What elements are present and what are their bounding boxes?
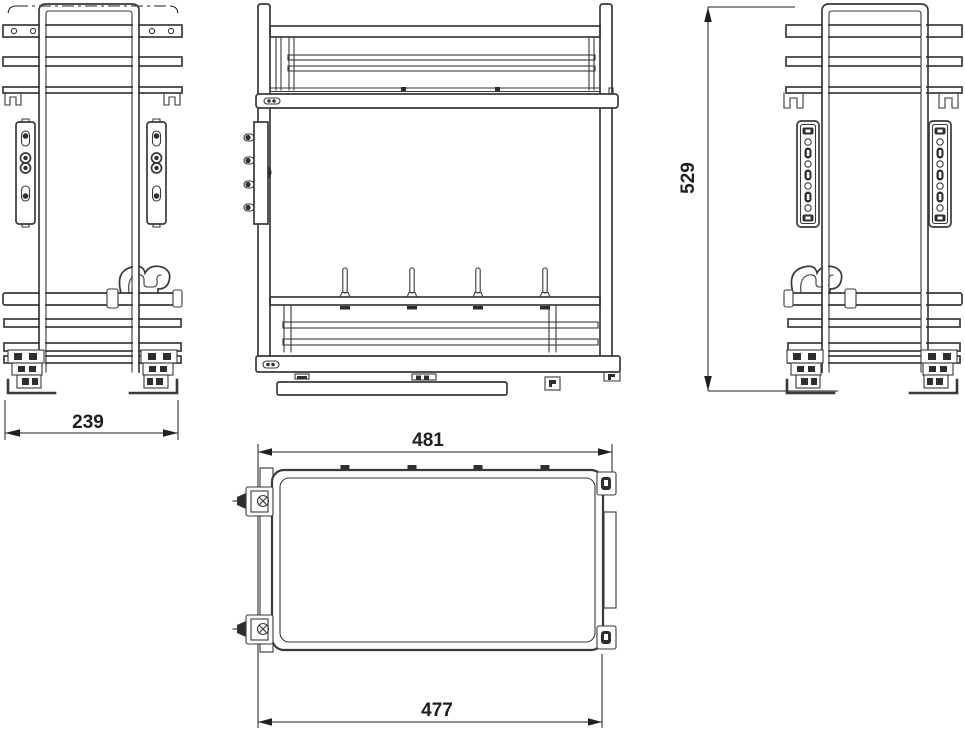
corner-bracket-top-right: [597, 472, 616, 495]
slotted-rail-right: [929, 121, 951, 227]
slotted-rail-left: [797, 121, 819, 227]
handle-frame: [822, 4, 928, 372]
dimension-value-top-rail-width: 481: [412, 430, 444, 451]
technical-drawing-page: 239 529 481 477: [0, 0, 965, 730]
dimension-value-side-width: 239: [72, 412, 104, 433]
handle-frame: [39, 4, 139, 372]
corner-hook-left: [5, 93, 21, 105]
slide-rail-top: [604, 512, 616, 608]
dimension-value-overall-height: 529: [678, 162, 699, 194]
corner-hook-right: [164, 93, 180, 105]
pullout-basket-technical-drawing: 239 529 481 477: [0, 0, 965, 730]
dimension-top-tray-width: 477: [258, 654, 602, 728]
clamp-bracket-bottom-left: [233, 615, 273, 644]
view-front: [244, 4, 620, 395]
slide-rail: [277, 382, 507, 395]
corner-bracket-bottom-right: [597, 626, 616, 649]
view-top: [233, 465, 616, 652]
dimension-side-width: 239: [5, 400, 178, 440]
view-side-left: [3, 4, 182, 393]
tray-outer: [272, 470, 603, 650]
mounting-plate-rear: [147, 119, 166, 227]
corner-hook-right: [939, 93, 958, 108]
corner-hook-left: [784, 93, 803, 108]
clamp-bracket-top-left: [233, 487, 273, 516]
view-side-right: [784, 4, 962, 393]
rail-clip: [119, 266, 169, 293]
rail-clip: [791, 266, 841, 293]
side-mount-bracket: [244, 122, 272, 224]
dimension-value-top-tray-width: 477: [421, 700, 453, 721]
mounting-plate-front: [16, 119, 35, 227]
